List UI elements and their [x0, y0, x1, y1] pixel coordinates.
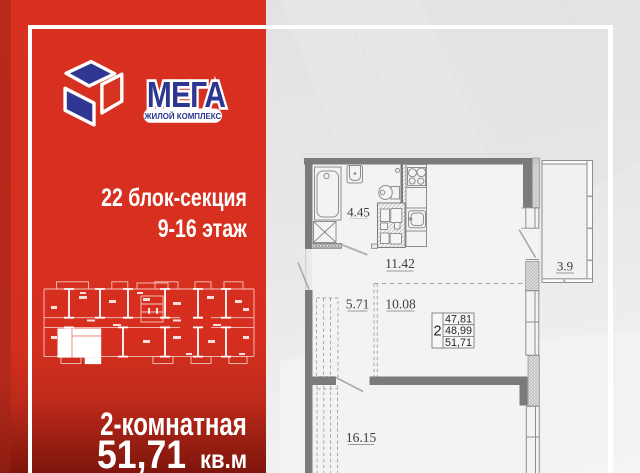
svg-text:48,99: 48,99: [445, 325, 472, 337]
svg-text:3.9: 3.9: [557, 259, 573, 274]
svg-text:47,81: 47,81: [445, 313, 472, 325]
svg-text:5.71: 5.71: [346, 297, 370, 312]
svg-text:4.45: 4.45: [347, 205, 370, 220]
svg-text:16.15: 16.15: [346, 430, 377, 445]
svg-text:10.08: 10.08: [385, 297, 416, 312]
svg-text:51,71: 51,71: [445, 337, 472, 349]
svg-text:2: 2: [434, 324, 442, 340]
svg-text:11.42: 11.42: [385, 256, 415, 271]
